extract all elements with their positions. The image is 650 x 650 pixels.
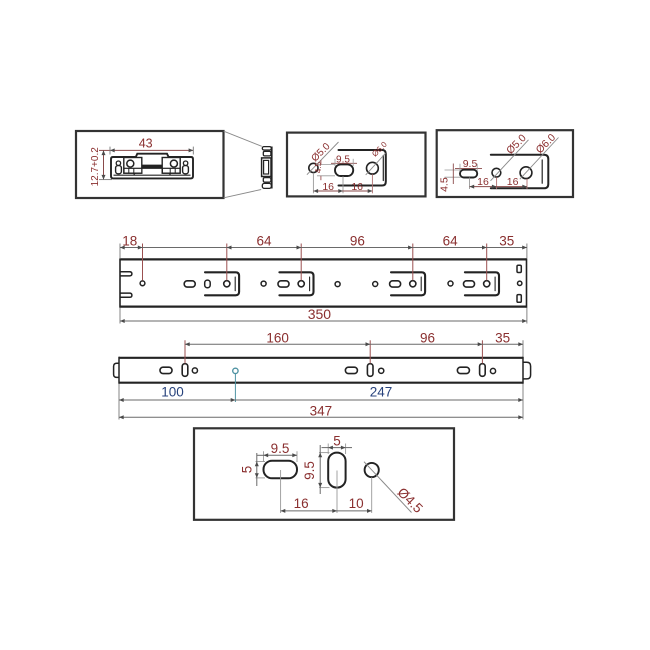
svg-text:18: 18 bbox=[122, 234, 137, 249]
svg-text:16: 16 bbox=[294, 496, 309, 511]
svg-text:12.7+0.2: 12.7+0.2 bbox=[90, 147, 101, 187]
svg-text:16: 16 bbox=[322, 181, 334, 193]
svg-text:35: 35 bbox=[495, 330, 510, 345]
svg-text:350: 350 bbox=[308, 306, 332, 322]
svg-text:5: 5 bbox=[333, 433, 341, 448]
svg-text:4.5: 4.5 bbox=[439, 177, 451, 192]
svg-text:4.5: 4.5 bbox=[314, 161, 323, 173]
svg-text:64: 64 bbox=[443, 234, 459, 249]
svg-text:160: 160 bbox=[266, 330, 289, 345]
svg-text:16: 16 bbox=[477, 176, 489, 188]
svg-text:16: 16 bbox=[507, 176, 519, 188]
svg-text:35: 35 bbox=[499, 234, 514, 249]
svg-text:100: 100 bbox=[161, 384, 184, 399]
svg-text:10: 10 bbox=[349, 496, 364, 511]
svg-text:96: 96 bbox=[420, 330, 435, 345]
svg-text:9.5: 9.5 bbox=[302, 461, 317, 480]
svg-text:96: 96 bbox=[350, 234, 365, 249]
svg-text:9.5: 9.5 bbox=[271, 441, 290, 456]
svg-text:64: 64 bbox=[256, 234, 272, 249]
svg-text:16: 16 bbox=[351, 181, 363, 193]
svg-text:43: 43 bbox=[139, 136, 153, 150]
svg-text:247: 247 bbox=[370, 384, 393, 399]
svg-text:347: 347 bbox=[310, 403, 333, 418]
svg-text:5: 5 bbox=[240, 466, 255, 474]
